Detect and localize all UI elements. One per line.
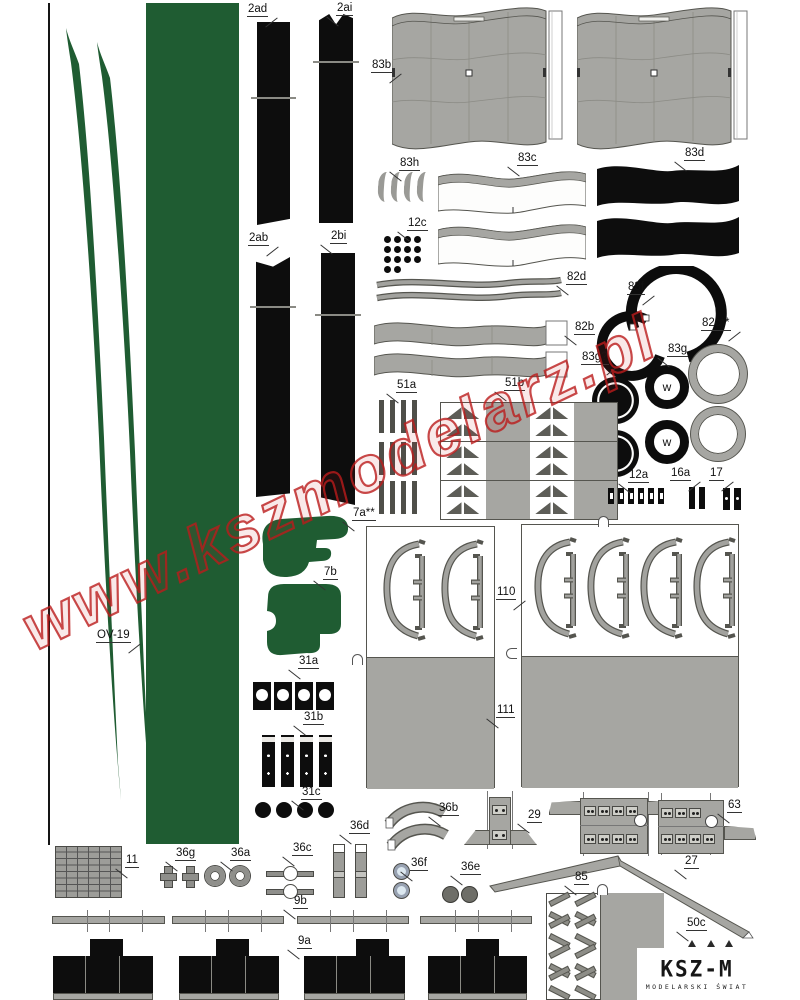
label-85: 85	[574, 871, 589, 885]
part-2ab	[256, 257, 290, 497]
label-83c: 83c	[517, 152, 538, 166]
part-31b	[300, 735, 313, 787]
part-ov19-green-panel	[146, 3, 239, 844]
part-83c-lower	[438, 219, 586, 267]
part-31a	[316, 682, 334, 710]
label-31b: 31b	[303, 711, 324, 725]
part-17	[723, 488, 730, 510]
part-31b	[281, 735, 294, 787]
part-83b-panel-right	[577, 2, 749, 154]
label-2bi: 2bi	[330, 230, 347, 244]
label-12a: 12a	[628, 469, 649, 483]
part-83d-lower	[597, 212, 739, 262]
part-83d-upper	[597, 160, 739, 210]
part-12a	[618, 488, 624, 504]
label-17: 17	[709, 467, 724, 481]
part-12a	[648, 488, 654, 504]
label-29: 29	[527, 809, 542, 823]
part-31a	[253, 682, 271, 710]
label-11: 11	[125, 854, 139, 868]
part-31a	[295, 682, 313, 710]
door-seal	[582, 534, 630, 646]
label-7b: 7b	[323, 566, 338, 580]
label-7a: 7a**	[352, 507, 376, 521]
label-36b: 36b	[438, 802, 459, 816]
part-31b	[262, 735, 275, 787]
part-36g	[182, 866, 199, 888]
seat-wedge	[535, 502, 568, 514]
part-36c	[266, 866, 312, 880]
part-2bi	[321, 253, 355, 505]
seat-wedge	[446, 424, 479, 436]
label-51a: 51a	[396, 379, 417, 393]
logo-title: KSZ-M	[660, 956, 733, 981]
part-31b	[319, 735, 332, 787]
label-63: 63	[727, 799, 742, 813]
label-83gq: 83g?	[581, 351, 609, 365]
chevron-mark	[550, 974, 572, 992]
label-36f: 36f	[410, 857, 428, 871]
part-50c	[725, 940, 733, 947]
part-83g-ring: w	[645, 365, 689, 409]
glue-hook	[352, 654, 363, 665]
label-31a: 31a	[298, 655, 319, 669]
part-36a	[205, 866, 225, 886]
part-2ai	[319, 14, 353, 223]
publisher-logo: KSZ-M MODELARSKI ŚWIAT	[637, 948, 757, 1000]
part-83h	[416, 171, 434, 202]
label-51b: 51b	[504, 377, 525, 391]
wheel-letter: w	[663, 435, 672, 449]
door-seal	[529, 534, 577, 646]
label-12c: 12c	[407, 217, 428, 231]
part-12a	[658, 488, 664, 504]
door-seal	[688, 534, 736, 646]
seat-wedge	[446, 502, 479, 514]
label-27: 27	[684, 855, 699, 869]
part-50c	[707, 940, 715, 947]
seat-wedge	[446, 446, 479, 458]
part-36d	[333, 844, 345, 898]
label-36e: 36e	[460, 861, 481, 875]
part-36a	[230, 866, 250, 886]
label-83g: 83g	[667, 343, 688, 357]
label-111: 111	[496, 704, 515, 718]
part-9b-strip	[420, 916, 532, 924]
glue-hook	[597, 884, 608, 895]
part-82c-ring	[691, 407, 745, 461]
part-83b-panel-left	[392, 2, 564, 154]
part-31c	[297, 802, 313, 818]
label-36a: 36a	[230, 847, 251, 861]
label-ov19: OV-19	[96, 629, 131, 643]
part-82b-bands	[374, 312, 570, 378]
part-31a	[274, 682, 292, 710]
label-83b: 83b	[371, 59, 392, 73]
label-82c: 82c**	[701, 317, 731, 331]
wheel-letter: w	[663, 380, 672, 394]
part-51a-bars	[379, 481, 418, 514]
label-2ab: 2ab	[248, 232, 269, 246]
seat-wedge	[535, 446, 568, 458]
chevron-mark	[576, 922, 598, 940]
part-16a	[699, 487, 705, 509]
part-82c-ring	[689, 345, 747, 403]
label-83f: 83f	[627, 281, 645, 295]
label-36c: 36c	[292, 842, 313, 856]
seat-wedge	[535, 485, 568, 497]
part-36e	[442, 886, 459, 903]
glue-hook	[598, 516, 609, 527]
label-2ai: 2ai	[336, 2, 353, 16]
seat-wedge	[446, 407, 479, 419]
label-36d: 36d	[349, 820, 370, 834]
part-31c	[255, 802, 271, 818]
part-36d	[355, 844, 367, 898]
door-seal	[378, 536, 426, 648]
label-2ad: 2ad	[247, 3, 268, 17]
fold-line	[313, 61, 359, 63]
part-50c	[688, 940, 696, 947]
sheet-edge-rule	[48, 3, 50, 845]
seat-wedge	[535, 424, 568, 436]
part-11-grid	[55, 846, 122, 898]
part-31c	[318, 802, 334, 818]
part-7b	[250, 577, 352, 663]
part-36f	[394, 883, 409, 898]
chevron-mark	[550, 922, 572, 940]
part-31c	[276, 802, 292, 818]
part-83g-ring: w	[645, 420, 689, 464]
seat-wedge	[535, 463, 568, 475]
part-51a-bars	[379, 400, 418, 433]
door-seal	[436, 536, 484, 648]
seat-wedge	[446, 463, 479, 475]
logo-subtitle: MODELARSKI ŚWIAT	[646, 983, 749, 991]
label-31c: 31c	[301, 786, 322, 800]
door-seal	[635, 534, 683, 646]
label-9b: 9b	[293, 895, 308, 909]
fold-line	[251, 97, 296, 99]
seat-wedge	[535, 407, 568, 419]
label-82b: 82b	[574, 321, 595, 335]
fold-line	[315, 314, 361, 316]
chevron-mark	[576, 974, 598, 992]
part-12a	[608, 488, 614, 504]
glue-hook	[506, 648, 517, 659]
label-36g: 36g	[175, 847, 196, 861]
seat-wedge	[446, 485, 479, 497]
label-16a: 16a	[670, 467, 691, 481]
part-12a	[638, 488, 644, 504]
part-83c-upper	[438, 166, 586, 214]
part-51a-bars	[379, 442, 418, 475]
part-7a	[253, 510, 357, 584]
label-83h: 83h	[399, 157, 420, 171]
part-2ad	[257, 22, 290, 225]
label-110: 110	[496, 586, 516, 600]
fold-line	[250, 306, 296, 308]
model-parts-sheet: www.kszmodelarz.pl	[0, 0, 800, 1000]
part-36e	[461, 886, 478, 903]
label-50c: 50c	[686, 917, 707, 931]
label-82d: 82d	[566, 271, 587, 285]
label-83d: 83d	[684, 147, 705, 161]
part-82d-strips	[374, 276, 564, 312]
part-17	[734, 488, 741, 510]
label-9a: 9a	[297, 935, 312, 949]
